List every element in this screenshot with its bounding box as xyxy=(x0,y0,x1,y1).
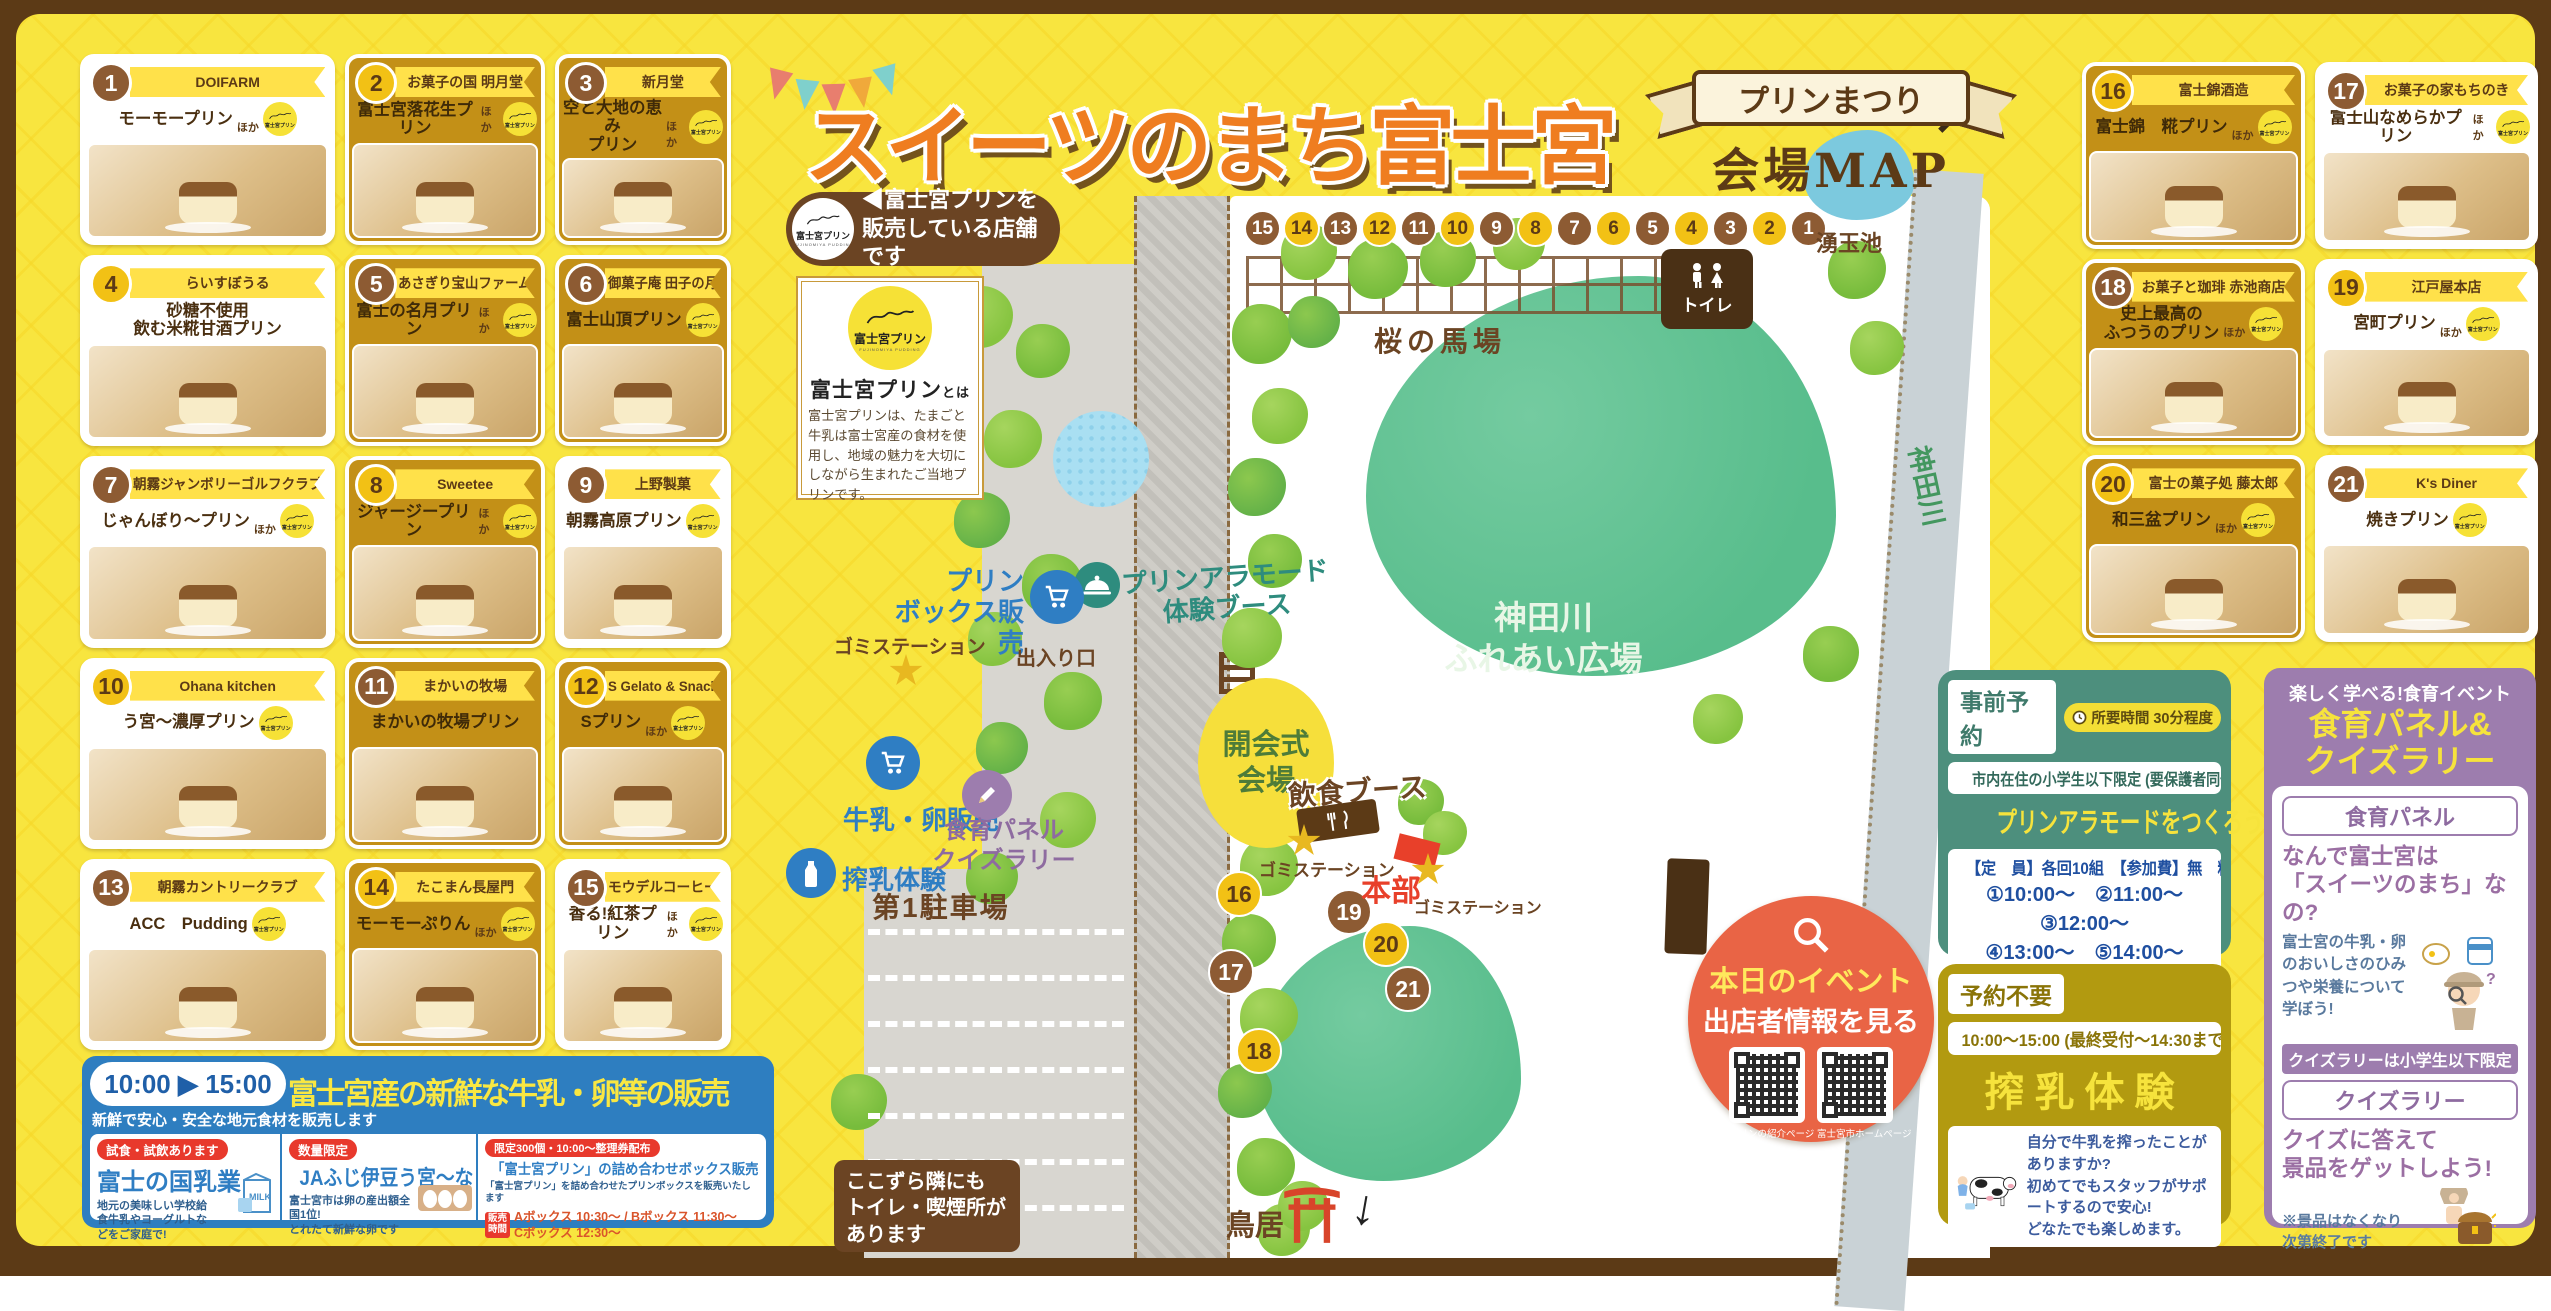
pudding-illustration xyxy=(179,383,237,425)
pudding-illustration xyxy=(614,987,672,1029)
product-photo xyxy=(87,747,328,842)
product-name: ジャージープリン xyxy=(353,503,474,540)
milk-carton-icon: MILK xyxy=(236,1166,276,1216)
vendor-number: 16 xyxy=(2092,70,2134,112)
vendor-card: 19 江戸屋本店 宮町プリン ほか 富士宮プリン xyxy=(2315,259,2538,446)
vendor-card: 6 御菓子庵 田子の月 富士山頂プリン 富士宮プリン xyxy=(555,255,731,446)
treasure-chest-illustration xyxy=(2406,1188,2496,1252)
banner-time-pill: 10:00 ▶ 15:00 xyxy=(90,1062,286,1106)
vendor-name-ribbon: お菓子の国 明月堂 xyxy=(395,67,535,97)
fuji-squiggle-icon xyxy=(675,713,701,725)
vendor-card: 16 富士錦酒造 富士錦 糀プリン ほか 富士宮プリン xyxy=(2082,62,2305,249)
fujinomiya-pudding-badge-icon: 富士宮プリン xyxy=(280,504,314,538)
product-name: 香る!紅茶プリン xyxy=(563,905,663,942)
etc-label: ほか xyxy=(666,118,685,150)
ribbon-line2: 会場MAP xyxy=(1692,132,1970,201)
product-name: 富士の名月プリン xyxy=(353,302,474,339)
vendor-name-ribbon: 朝霧ジャンボリーゴルフクラブ xyxy=(130,469,325,499)
product-name: 和三盆プリン xyxy=(2112,511,2211,529)
pudding-illustration xyxy=(416,987,474,1029)
toilet-smoking-note: ここずら隣にも トイレ・喫煙所が あります xyxy=(834,1160,1020,1252)
vendor-card: 2 お菓子の国 明月堂 富士宮落花生プリン ほか 富士宮プリン xyxy=(345,54,545,245)
product-row: じゃんぼり〜プリン ほか 富士宮プリン xyxy=(84,499,331,541)
pudding-illustration xyxy=(2398,579,2456,621)
section-desc: 富士宮市は卵の産出額全国1位! とれたて新鮮な卵です xyxy=(289,1194,417,1237)
product-name: ACC Pudding xyxy=(130,915,248,933)
product-name: モーモープリン xyxy=(118,110,233,128)
plaza-label: 神田川 ふれあい広場 xyxy=(1416,597,1671,680)
product-photo xyxy=(2089,544,2298,635)
parking-stripe xyxy=(868,1021,1124,1027)
milk-sale-banner: 10:00 ▶ 15:00 新鮮で安心・安全な地元食材を販売します 富士宮産の新… xyxy=(82,1056,774,1228)
vendor-card: 14 たこまん長屋門 モーモーぷりん ほか 富士宮プリン xyxy=(345,859,545,1050)
vendor-card: 1 DOIFARM モーモープリン ほか 富士宮プリン xyxy=(80,54,335,245)
product-name: じゃんぼり〜プリン xyxy=(101,512,250,530)
product-name: まかいの牧場プリン xyxy=(371,713,520,731)
vendor-name: 御菓子庵 田子の月 xyxy=(608,273,718,293)
milking-panel: 予約不要 10:00〜15:00 (最終受付〜14:30まで) 搾乳体験 自分で… xyxy=(1938,964,2231,1226)
fuji-squiggle-icon xyxy=(2245,511,2271,523)
section-badge: 試食・試飲あります xyxy=(97,1139,228,1160)
pudding-illustration xyxy=(614,383,672,425)
vendor-name-ribbon: たこまん長屋門 xyxy=(395,872,535,902)
fuji-squiggle-icon xyxy=(2253,314,2279,326)
qr-caption-1: プリンの紹介ページ xyxy=(1729,1126,1805,1140)
reserve-tag: 事前予約 xyxy=(1948,680,2056,754)
etc-label: ほか xyxy=(2232,127,2254,143)
product-row: モーモープリン ほか 富士宮プリン xyxy=(84,97,331,139)
pudding-illustration xyxy=(614,786,672,828)
product-row: 砂糖不使用 飲む米糀甘酒プリン xyxy=(84,298,331,340)
product-photo xyxy=(562,158,724,238)
map-booth-number: 14 xyxy=(1283,210,1320,247)
vendor-grid-left: 1 DOIFARM モーモープリン ほか 富士宮プリン 2 お菓子の国 明月堂 … xyxy=(80,54,660,1050)
panel-tag-2: クイズラリー xyxy=(2282,1080,2518,1120)
fuji-squiggle-icon xyxy=(505,914,531,926)
map-booth-number: 5 xyxy=(1634,210,1671,247)
headquarters-label: 本部 xyxy=(1361,866,1421,910)
poster-title: スイーツのまち富士宮 xyxy=(804,76,1636,201)
fuji-squiggle-icon xyxy=(2500,118,2526,130)
cart-icon xyxy=(866,736,920,790)
fujinomiya-pudding-badge-icon: 富士宮プリン xyxy=(2258,110,2292,144)
stage-tent xyxy=(1664,858,1709,954)
restroom-icon xyxy=(1685,262,1729,288)
vendor-number: 6 xyxy=(565,263,607,305)
product-row: 和三盆プリン ほか 富士宮プリン xyxy=(2086,498,2301,540)
quiz-panel: 楽しく学べる!食育イベント 食育パネル& クイズラリー 食育パネル なんで富士宮… xyxy=(2264,668,2536,1228)
product-photo xyxy=(87,545,328,640)
vendor-card: 5 あさぎり宝山ファーム 富士の名月プリン ほか 富士宮プリン xyxy=(345,255,545,446)
product-photo xyxy=(87,143,328,238)
etc-label: ほか xyxy=(2223,324,2245,340)
vendor-name-ribbon: お菓子と珈琲 赤池商店 xyxy=(2132,272,2295,302)
vendor-name-ribbon: 御菓子庵 田子の月 xyxy=(605,268,721,298)
section-desc: 地元の美味しい学校給食牛乳やヨーグルトなどをご家庭で! xyxy=(97,1199,215,1242)
fuji-squiggle-icon xyxy=(267,110,293,122)
pudding-illustration xyxy=(2165,186,2223,228)
product-photo xyxy=(87,948,328,1043)
parking-stripe xyxy=(868,975,1124,981)
etc-label: ほか xyxy=(2215,520,2237,536)
exit-label: 出入り口 xyxy=(1016,642,1096,671)
pudding-illustration xyxy=(179,786,237,828)
vendor-name-ribbon: DOIFARM xyxy=(130,67,325,97)
fujinomiya-pudding-badge-icon: 富士宮プリン xyxy=(503,303,537,337)
svg-text:?: ? xyxy=(2486,971,2496,988)
vendor-name-ribbon: 富士錦酒造 xyxy=(2132,75,2295,105)
no-reserve-tag: 予約不要 xyxy=(1948,974,2064,1014)
egg-carton-icon xyxy=(416,1177,474,1215)
milk-bottle-icon xyxy=(786,848,836,898)
fujinomiya-pudding-badge-icon: 富士宮プリン xyxy=(252,907,286,941)
map-booth-number: 17 xyxy=(1208,949,1254,995)
vendor-card: 9 上野製菓 朝霧高原プリン 富士宮プリン xyxy=(555,456,731,647)
pudding-illustration xyxy=(614,182,672,224)
vendor-number: 3 xyxy=(565,62,607,104)
product-name: 史上最高の ふつうのプリン xyxy=(2104,305,2220,342)
capacity-fee-text: 【定 員】各回10組 【参加費】無 料 xyxy=(1966,855,2221,879)
fujinomiya-pudding-badge-icon: 富士宮プリン xyxy=(2241,503,2275,537)
fuji-squiggle-icon xyxy=(693,914,719,926)
fork-knife-icon xyxy=(1320,808,1357,835)
product-photo xyxy=(2322,348,2531,439)
cart-icon xyxy=(1030,570,1084,624)
fuji-squiggle-icon xyxy=(507,311,533,323)
vendor-card: 13 朝霧カントリークラブ ACC Pudding 富士宮プリン xyxy=(80,859,335,1050)
milking-time: 10:00〜15:00 (最終受付〜14:30まで) xyxy=(1961,1026,2221,1051)
map-booth-number: 15 xyxy=(1244,210,1281,247)
fuji-squiggle-icon xyxy=(256,914,282,926)
map-booth-number: 8 xyxy=(1517,210,1554,247)
product-photo xyxy=(352,143,538,238)
sale-times: Aボックス 10:30〜 / Bボックス 11:30〜 Cボックス 12:30〜 xyxy=(514,1209,737,1242)
svg-text:MILK: MILK xyxy=(249,1192,271,1202)
vendor-number: 11 xyxy=(355,666,397,708)
poster-background: 151413121110987654321 161718192021 湧玉池 桜… xyxy=(16,14,2535,1246)
fuji-squiggle-icon xyxy=(284,512,310,524)
torii-gate-icon xyxy=(1280,1178,1344,1248)
vendor-number: 4 xyxy=(90,263,132,305)
fuji-squiggle-icon xyxy=(507,512,533,524)
vendor-number: 15 xyxy=(565,867,607,909)
pudding-illustration xyxy=(179,585,237,627)
fujinomiya-pudding-badge-icon: 富士宮プリン xyxy=(686,504,720,538)
product-name: 富士山なめらかプリン xyxy=(2323,109,2469,146)
vendor-name-ribbon: モウデルコーヒー xyxy=(605,872,721,902)
product-name: 焼きプリン xyxy=(2366,511,2449,529)
pudding-illustration xyxy=(179,182,237,224)
pencil-icon xyxy=(962,770,1012,820)
banner-title: 富士宮産の新鮮な牛乳・卵等の販売 xyxy=(288,1069,728,1113)
vendor-name: 上野製菓 xyxy=(635,474,691,494)
product-name: 富士錦 糀プリン xyxy=(2096,118,2228,136)
product-photo xyxy=(352,747,538,842)
vendor-name: たこまん長屋門 xyxy=(416,877,514,897)
panel-tag-1: 食育パネル xyxy=(2282,796,2518,836)
map-booth-number: 12 xyxy=(1361,210,1398,247)
nutrition-quiz-label: 食育パネル クイズラリー xyxy=(914,816,1094,876)
vendor-name-ribbon: K's Diner xyxy=(2365,468,2528,498)
qr-caption-2: 富士宮市ホームページ xyxy=(1817,1126,1893,1140)
vendor-name: まかいの牧場 xyxy=(423,676,507,696)
fujinomiya-pudding-badge-icon: 富士宮プリン xyxy=(2496,110,2530,144)
restriction-text: 市内在住の小学生以下限定 (要保護者同伴) xyxy=(1972,766,2221,790)
product-photo xyxy=(87,344,328,439)
etc-label: ほか xyxy=(645,723,667,739)
vendor-card: 8 Sweetee ジャージープリン ほか 富士宮プリン xyxy=(345,456,545,647)
fujinomiya-pudding-badge-icon: 富士宮プリン xyxy=(503,504,537,538)
toilet-sign: トイレ xyxy=(1661,249,1753,329)
map-booth-number: 18 xyxy=(1236,1028,1282,1074)
vendor-name: 新月堂 xyxy=(642,72,684,92)
vendor-card: 7 朝霧ジャンボリーゴルフクラブ じゃんぼり〜プリン ほか 富士宮プリン xyxy=(80,456,335,647)
baba-label: 桜の馬場 xyxy=(1374,320,1506,360)
banner-section-dairy: 試食・試飲あります 富士の国乳業 地元の美味しい学校給食牛乳やヨーグルトなどをご… xyxy=(90,1134,280,1220)
clock-icon xyxy=(2072,710,2087,725)
cow-illustration xyxy=(1954,1144,2021,1228)
toilet-label: トイレ xyxy=(1682,291,1733,316)
search-icon xyxy=(1790,914,1832,956)
vendor-name: S Gelato & Snack xyxy=(608,678,718,694)
vendor-name: お菓子と珈琲 赤池商店 xyxy=(2142,277,2286,297)
vendor-name-ribbon: お菓子の家もちのき xyxy=(2365,75,2528,105)
map-booth-number: 2 xyxy=(1751,210,1788,247)
vendor-name: 富士錦酒造 xyxy=(2179,80,2249,100)
parking-stripe xyxy=(868,1067,1124,1073)
reservation-panel: 事前予約 所要時間 30分程度 市内在住の小学生以下限定 (要保護者同伴) プリ… xyxy=(1938,670,2231,956)
time-slots: ①10:00〜 ②11:00〜 ③12:00〜 ④13:00〜 ⑤14:00〜 xyxy=(1954,881,2215,968)
vendor-name: 朝霧ジャンボリーゴルフクラブ xyxy=(133,474,322,494)
vendor-number: 13 xyxy=(90,867,132,909)
vendor-name-ribbon: 江戸屋本店 xyxy=(2365,272,2528,302)
vendor-number: 14 xyxy=(355,867,397,909)
etc-label: ほか xyxy=(475,924,497,940)
seller-note-text: ◀富士宮プリンを 販売している店舗です xyxy=(862,186,1054,272)
map-booth-number: 7 xyxy=(1556,210,1593,247)
vendor-name: K's Diner xyxy=(2416,475,2477,491)
banner-section-eggs: 数量限定 JAふじ伊豆う宮〜な 富士宮市は卵の産出額全国1位! とれたて新鮮な卵… xyxy=(280,1134,476,1220)
etc-label: ほか xyxy=(479,304,499,336)
product-name: 砂糖不使用 飲む米糀甘酒プリン xyxy=(133,302,282,339)
product-photo xyxy=(562,344,724,439)
map-booth-number: 4 xyxy=(1673,210,1710,247)
event-map-poster: 151413121110987654321 161718192021 湧玉池 桜… xyxy=(0,0,2551,1276)
bunting-flag-icon xyxy=(763,68,794,103)
vendor-name-ribbon: Ohana kitchen xyxy=(130,671,325,701)
trash-station-label-1: ゴミステーション xyxy=(834,632,986,659)
vendor-card: 12 S Gelato & Snack Sプリン ほか 富士宮プリン xyxy=(555,658,731,849)
etc-label: ほか xyxy=(254,521,276,537)
product-photo xyxy=(562,747,724,842)
detective-kid-illustration: ? xyxy=(2416,932,2502,1036)
pudding-illustration xyxy=(2398,382,2456,424)
vendor-grid-right: 16 富士錦酒造 富士錦 糀プリン ほか 富士宮プリン 17 お菓子の家もちのき… xyxy=(2082,62,2538,642)
vendor-number: 19 xyxy=(2325,267,2367,309)
vendor-number: 9 xyxy=(565,464,607,506)
vendor-number: 10 xyxy=(90,666,132,708)
fuji-squiggle-icon xyxy=(507,110,533,122)
section-desc: 「富士宮プリン」を詰め合わせたプリンボックスを販売いたします xyxy=(485,1181,759,1206)
map-booth-number: 16 xyxy=(1216,871,1262,917)
vendor-name-ribbon: 上野製菓 xyxy=(605,469,721,499)
pudding-illustration xyxy=(2398,186,2456,228)
vendor-name-ribbon: 富士の菓子処 藤太郎 xyxy=(2132,468,2295,498)
fuji-squiggle-icon xyxy=(2470,314,2496,326)
product-photo xyxy=(2089,151,2298,242)
subtitle-ribbon: プリンまつり 会場MAP xyxy=(1648,64,2014,194)
vendor-number: 12 xyxy=(565,666,607,708)
torii-label: 鳥居 xyxy=(1226,1202,1284,1244)
vendor-number: 1 xyxy=(90,62,132,104)
vendor-name: らいすぼうる xyxy=(186,273,270,293)
vendor-name: DOIFARM xyxy=(195,74,260,90)
quiz-subtitle: 楽しく学べる!食育イベント xyxy=(2272,680,2528,706)
vendor-name: あさぎり宝山ファーム xyxy=(398,273,532,293)
vendor-card: 15 モウデルコーヒー 香る!紅茶プリン ほか 富士宮プリン xyxy=(555,859,731,1050)
map-booth-number: 10 xyxy=(1439,210,1476,247)
event-info-circle: 本日のイベント 出店者情報を見る プリンの紹介ページ 富士宮市ホームページ xyxy=(1688,896,1934,1142)
qr-code-city-homepage xyxy=(1817,1047,1893,1123)
product-name: Sプリン xyxy=(581,713,642,731)
fuji-squiggle-icon xyxy=(690,311,716,323)
vendor-name-ribbon: Sweetee xyxy=(395,469,535,499)
parking-stripe xyxy=(868,929,1124,935)
vendor-name: 江戸屋本店 xyxy=(2412,277,2482,297)
fountain-circle xyxy=(1053,411,1149,507)
product-photo xyxy=(352,344,538,439)
product-photo xyxy=(352,545,538,640)
fujinomiya-pudding-badge-icon: 富士宮プリン xyxy=(671,706,705,740)
section-badge: 限定300個・10:00〜整理券配布 xyxy=(485,1139,660,1157)
pudding-illustration xyxy=(416,383,474,425)
workshop-title: プリンアラモードをつくろう xyxy=(1996,801,2263,841)
map-booth-number: 20 xyxy=(1363,921,1409,967)
fujinomiya-pudding-badge-icon: 富士宮プリン xyxy=(259,706,293,740)
section-name: 「富士宮プリン」の詰め合わせボックス販売 xyxy=(491,1159,759,1179)
vendor-card: 4 らいすぼうる 砂糖不使用 飲む米糀甘酒プリン xyxy=(80,255,335,446)
milking-title: 搾乳体験 xyxy=(1948,1060,2221,1118)
fuji-squiggle-icon xyxy=(690,512,716,524)
vendor-card: 10 Ohana kitchen う宮〜濃厚プリン 富士宮プリン xyxy=(80,658,335,849)
pudding-illustration xyxy=(2165,382,2223,424)
vendor-name: Ohana kitchen xyxy=(179,678,275,694)
parking-stripe xyxy=(868,1113,1124,1119)
product-row: 空と大地の恵み プリン ほか 富士宮プリン xyxy=(559,97,727,154)
vendor-name: Sweetee xyxy=(437,476,493,492)
product-photo xyxy=(2322,151,2531,242)
panel-desc: 富士宮の牛乳・卵のおいしさのひみつや栄養について学ぼう! xyxy=(2282,932,2412,1036)
vendor-card: 11 まかいの牧場 まかいの牧場プリン xyxy=(345,658,545,849)
vendor-name-ribbon: まかいの牧場 xyxy=(395,671,535,701)
map-booth-number: 11 xyxy=(1400,210,1437,247)
vendor-name-ribbon: らいすぼうる xyxy=(130,268,325,298)
booth-numbers-row: 151413121110987654321 xyxy=(1244,210,1827,247)
product-photo xyxy=(352,948,538,1043)
fujinomiya-pudding-badge-icon: 富士宮プリン xyxy=(2466,307,2500,341)
parking-label: 第1駐車場 xyxy=(872,886,1010,926)
trash-station-label-3: ゴミステーション xyxy=(1414,894,1542,918)
vendor-card: 18 お菓子と珈琲 赤池商店 史上最高の ふつうのプリン ほか 富士宮プリン xyxy=(2082,259,2305,446)
product-name: 宮町プリン xyxy=(2353,314,2436,332)
fujinomiya-pudding-badge-icon: 富士宮プリン xyxy=(2453,503,2487,537)
product-name: 富士宮落花生プリン xyxy=(353,101,476,138)
product-photo xyxy=(2322,544,2531,635)
ribbon-line1: プリンまつり xyxy=(1738,76,1924,121)
quiz-call-to-action: クイズに答えて 景品をゲットしよう! xyxy=(2282,1127,2518,1183)
vendor-name-ribbon: 朝霧カントリークラブ xyxy=(130,872,325,902)
product-row: 焼きプリン 富士宮プリン xyxy=(2319,498,2534,540)
banner-section-pudding-box: 限定300個・10:00〜整理券配布 「富士宮プリン」の詰め合わせボックス販売 … xyxy=(476,1134,766,1220)
vendor-number: 18 xyxy=(2092,267,2134,309)
pudding-illustration xyxy=(614,585,672,627)
pudding-illustration xyxy=(416,182,474,224)
fujinomiya-pudding-logo: 富士宮プリン FUJINOMIYA PUDDING xyxy=(792,198,854,260)
about-body: 富士宮プリンは、たまごと牛乳は富士宮産の食材を使用し、地域の魅力を大切にしながら… xyxy=(808,406,972,505)
pudding-illustration xyxy=(179,987,237,1029)
fujinomiya-pudding-badge-icon: 富士宮プリン xyxy=(686,303,720,337)
quiz-title: 食育パネル& クイズラリー xyxy=(2272,706,2528,780)
fujinomiya-pudding-badge-icon: 富士宮プリン xyxy=(263,102,297,136)
product-photo xyxy=(562,545,724,640)
quiz-limit-bar: クイズラリーは小学生以下限定 xyxy=(2282,1044,2518,1074)
vendor-name-ribbon: あさぎり宝山ファーム xyxy=(395,268,535,298)
vendor-card: 3 新月堂 空と大地の恵み プリン ほか 富士宮プリン xyxy=(555,54,731,245)
vendor-card: 17 お菓子の家もちのき 富士山なめらかプリン ほか 富士宮プリン xyxy=(2315,62,2538,249)
milking-desc: 自分で牛乳を搾ったことがありますか? 初めてでもスタッフがサポートするので安心!… xyxy=(2027,1132,2215,1241)
vendor-name: 朝霧カントリークラブ xyxy=(158,877,298,897)
pudding-illustration xyxy=(416,786,474,828)
fuji-squiggle-icon xyxy=(263,713,289,725)
etc-label: ほか xyxy=(2440,324,2462,340)
pond-label: 湧玉池 xyxy=(1816,226,1882,258)
vendor-number: 2 xyxy=(355,62,397,104)
about-heading: 富士宮プリンとは xyxy=(808,374,972,404)
fujinomiya-pudding-badge-icon: 富士宮プリン xyxy=(689,907,723,941)
map-booth-number: 13 xyxy=(1322,210,1359,247)
fuji-squiggle-icon xyxy=(2262,118,2288,130)
product-row: ACC Pudding 富士宮プリン xyxy=(84,902,331,944)
product-name: う宮〜濃厚プリン xyxy=(123,713,255,731)
vendor-card: 21 K's Diner 焼きプリン 富士宮プリン xyxy=(2315,455,2538,642)
etc-label: ほか xyxy=(481,103,499,135)
product-name: 富士山頂プリン xyxy=(566,311,682,329)
seller-note-pill: 富士宮プリン FUJINOMIYA PUDDING ◀富士宮プリンを 販売してい… xyxy=(786,192,1060,266)
map-booth-number: 6 xyxy=(1595,210,1632,247)
vendor-name-ribbon: S Gelato & Snack xyxy=(605,671,721,701)
product-name: 空と大地の恵み プリン xyxy=(563,99,662,154)
fujinomiya-pudding-badge-icon: 富士宮プリン xyxy=(501,907,535,941)
panel-question: なんで富士宮は 「スイーツのまち」なの? xyxy=(2282,843,2518,927)
duration-pill: 所要時間 30分程度 xyxy=(2064,703,2221,732)
vendor-number: 17 xyxy=(2325,70,2367,112)
vendor-name: お菓子の国 明月堂 xyxy=(407,72,523,92)
etc-label: ほか xyxy=(478,505,499,537)
map-booth-number: 9 xyxy=(1478,210,1515,247)
section-badge: 数量限定 xyxy=(289,1139,357,1160)
map-booth-number: 21 xyxy=(1385,966,1431,1012)
pudding-illustration xyxy=(2165,579,2223,621)
vendor-name: モウデルコーヒー xyxy=(608,877,718,897)
fuji-squiggle-icon xyxy=(693,117,719,129)
about-pudding-box: 富士宮プリン FUJINOMIYA PUDDING 富士宮プリンとは 富士宮プリ… xyxy=(796,276,984,500)
qr-code-pudding-page xyxy=(1729,1047,1805,1123)
quiz-note: ※景品はなくなり 次第終了です xyxy=(2282,1210,2402,1252)
product-name: モーモーぷりん xyxy=(356,915,471,933)
fujinomiya-pudding-badge-icon: 富士宮プリン xyxy=(689,110,723,144)
vendor-name: お菓子の家もちのき xyxy=(2384,80,2510,100)
fujinomiya-pudding-logo: 富士宮プリン FUJINOMIYA PUDDING xyxy=(848,286,932,370)
